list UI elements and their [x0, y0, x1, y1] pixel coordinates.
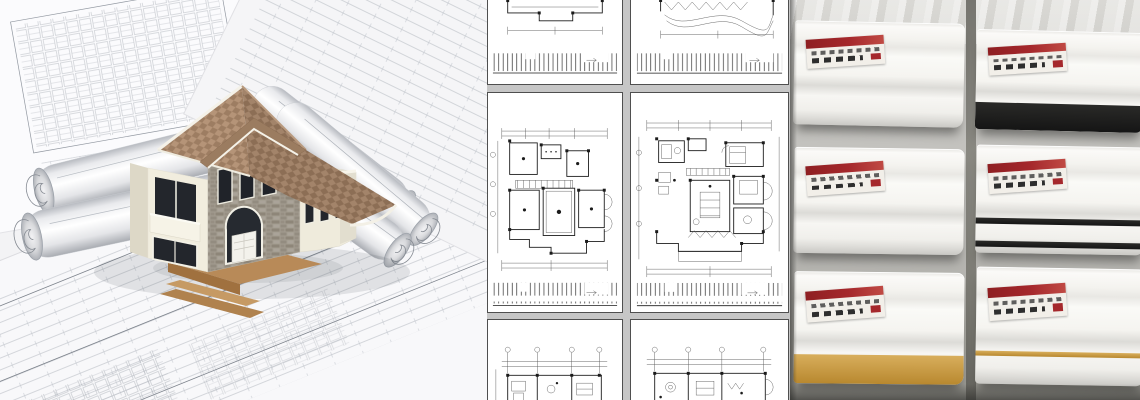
- label-text-line: [993, 180, 1045, 188]
- floor-plan-top-right: [631, 320, 788, 400]
- molding-sample-r2c1: [793, 147, 964, 255]
- black-stripe: [975, 102, 1140, 133]
- gold-stripe: [793, 354, 963, 385]
- molding-sample-r1c1: [793, 20, 965, 128]
- product-label: [805, 161, 885, 196]
- label-text-line: [811, 182, 863, 191]
- panel-edge-shadow: [790, 0, 797, 400]
- floorplan-card-r1c1: [487, 0, 623, 85]
- floorplan-sheet-grid: [487, 0, 790, 400]
- label-text-line: [811, 47, 880, 55]
- label-text-line: [811, 173, 880, 182]
- product-label: [805, 34, 885, 68]
- molding-sample-r3c1: [793, 271, 964, 385]
- product-label: [988, 43, 1067, 76]
- product-label: [987, 282, 1067, 320]
- roof-plan-bottom: [488, 0, 622, 84]
- house-left-wing: [130, 163, 208, 272]
- floor-plan-furnished: [631, 93, 788, 312]
- label-brand-mark: [1052, 303, 1063, 311]
- floor-plan-top-left: [488, 320, 622, 400]
- label-text-line: [811, 55, 863, 63]
- molding-sample-r2c2: [975, 145, 1140, 256]
- blueprint-house-photo: [0, 0, 487, 400]
- label-brand-mark: [870, 305, 881, 313]
- label-brand-mark: [871, 53, 882, 60]
- banner-collage: [0, 0, 1140, 400]
- label-text-line: [993, 172, 1062, 181]
- molding-sample-r1c2: [975, 29, 1140, 133]
- label-text-line: [811, 308, 863, 317]
- blueprint-house-scene: [0, 0, 487, 400]
- terrace-plan-bottom: [631, 0, 788, 84]
- label-brand-mark: [1052, 60, 1062, 67]
- black-stripe: [976, 218, 1140, 226]
- molding-sample-r3c2: [975, 267, 1140, 387]
- product-label: [805, 285, 885, 322]
- black-stripe: [975, 241, 1140, 249]
- floorplan-card-r2c2: [630, 92, 789, 313]
- label-text-line: [993, 55, 1061, 63]
- molding-samples-photo: [790, 0, 1140, 400]
- label-text-line: [993, 296, 1062, 305]
- label-text-line: [811, 299, 880, 308]
- bottom-shadow: [790, 384, 1140, 400]
- floorplan-card-r1c2: [630, 0, 789, 85]
- gold-stripe: [975, 350, 1140, 358]
- label-brand-mark: [1052, 178, 1063, 185]
- product-label: [987, 159, 1067, 195]
- floorplan-card-r2c1: [487, 92, 623, 313]
- floor-plan-unfurnished: [488, 93, 622, 312]
- column-gap-shadow: [966, 0, 976, 400]
- label-text-line: [993, 63, 1044, 71]
- entry-window-1: [218, 167, 232, 204]
- floorplan-card-r3c1: [487, 319, 623, 400]
- label-brand-mark: [871, 179, 882, 186]
- floorplan-card-r3c2: [630, 319, 789, 400]
- label-text-line: [993, 305, 1045, 314]
